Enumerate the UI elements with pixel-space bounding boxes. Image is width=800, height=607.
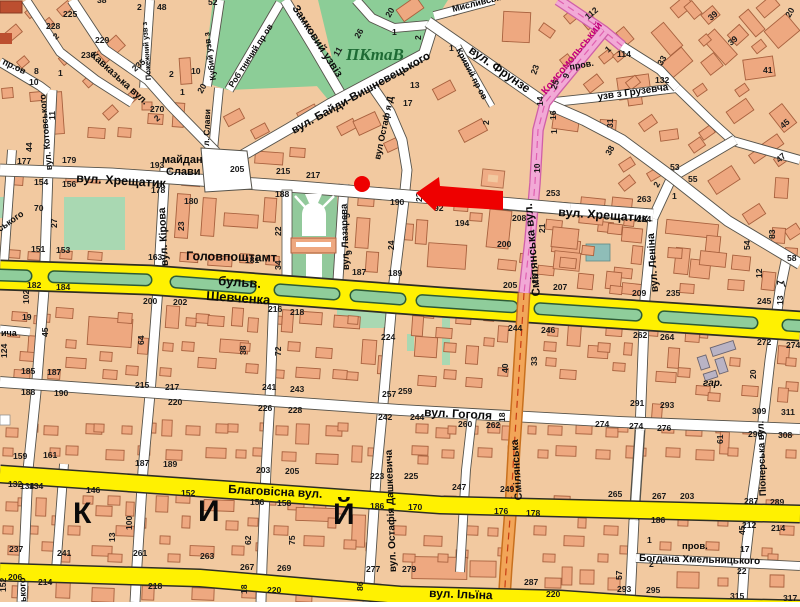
svg-text:86: 86 — [355, 581, 365, 591]
svg-text:1: 1 — [58, 68, 63, 78]
svg-text:1: 1 — [180, 87, 185, 97]
svg-text:62: 62 — [243, 535, 253, 545]
svg-text:70: 70 — [34, 203, 44, 213]
svg-text:132: 132 — [655, 75, 670, 85]
svg-text:ича: ича — [1, 328, 18, 338]
svg-text:242: 242 — [378, 412, 393, 422]
svg-text:38: 38 — [238, 345, 248, 355]
svg-text:287: 287 — [524, 577, 539, 587]
svg-text:176: 176 — [494, 506, 509, 516]
svg-text:187: 187 — [135, 458, 150, 468]
svg-text:184: 184 — [56, 282, 71, 292]
svg-text:188: 188 — [21, 387, 36, 397]
svg-text:151: 151 — [31, 244, 46, 254]
svg-text:190: 190 — [390, 197, 405, 207]
svg-text:152: 152 — [0, 577, 8, 592]
svg-text:205: 205 — [285, 466, 300, 476]
svg-text:203: 203 — [680, 491, 695, 501]
svg-text:К: К — [73, 497, 92, 530]
svg-text:9: 9 — [344, 250, 354, 255]
svg-text:58: 58 — [787, 253, 797, 263]
svg-text:245: 245 — [757, 296, 772, 306]
svg-text:193: 193 — [150, 160, 165, 170]
svg-text:247: 247 — [452, 482, 467, 492]
svg-text:263: 263 — [637, 194, 652, 204]
svg-text:Й: Й — [333, 497, 355, 531]
svg-text:1: 1 — [449, 43, 454, 53]
svg-text:1: 1 — [672, 191, 677, 201]
svg-text:146: 146 — [86, 485, 101, 495]
svg-text:21: 21 — [537, 223, 547, 233]
svg-text:майдан: майдан — [162, 154, 203, 166]
svg-text:230: 230 — [81, 50, 96, 60]
svg-text:241: 241 — [262, 382, 277, 392]
svg-text:261: 261 — [133, 548, 148, 558]
svg-text:2: 2 — [481, 120, 491, 125]
svg-text:291: 291 — [630, 398, 645, 408]
svg-text:2: 2 — [649, 559, 654, 569]
svg-text:246: 246 — [541, 325, 556, 335]
svg-text:13: 13 — [107, 532, 117, 542]
svg-text:260: 260 — [458, 419, 473, 429]
svg-text:27: 27 — [49, 218, 59, 228]
svg-text:182: 182 — [27, 280, 42, 290]
svg-text:45: 45 — [40, 327, 50, 337]
svg-text:22: 22 — [273, 226, 283, 236]
svg-text:180: 180 — [184, 196, 199, 206]
svg-text:267: 267 — [652, 491, 667, 501]
svg-text:10: 10 — [532, 163, 542, 173]
svg-text:295: 295 — [646, 585, 661, 595]
svg-text:1: 1 — [647, 535, 652, 545]
svg-text:244: 244 — [410, 412, 425, 422]
svg-text:277: 277 — [366, 564, 381, 574]
svg-text:33: 33 — [529, 356, 539, 366]
svg-text:185: 185 — [21, 366, 36, 376]
svg-text:276: 276 — [657, 423, 672, 433]
svg-text:274: 274 — [629, 421, 644, 431]
svg-text:244: 244 — [508, 323, 523, 333]
svg-text:17: 17 — [403, 98, 413, 108]
svg-text:14: 14 — [535, 96, 545, 106]
svg-text:287: 287 — [744, 496, 759, 506]
svg-text:8: 8 — [34, 66, 39, 76]
svg-text:11: 11 — [47, 111, 57, 120]
svg-text:224: 224 — [381, 332, 396, 342]
svg-text:215: 215 — [135, 380, 150, 390]
svg-text:38: 38 — [97, 0, 107, 5]
svg-text:202: 202 — [173, 297, 188, 307]
svg-text:23: 23 — [176, 221, 186, 231]
svg-text:309: 309 — [752, 406, 767, 416]
svg-text:57: 57 — [614, 570, 624, 580]
svg-text:10: 10 — [29, 77, 39, 87]
svg-text:75: 75 — [287, 535, 297, 545]
svg-text:186: 186 — [651, 515, 666, 525]
svg-text:188: 188 — [275, 189, 290, 199]
svg-text:217: 217 — [306, 170, 321, 180]
svg-text:218: 218 — [148, 581, 163, 591]
svg-text:10: 10 — [191, 66, 201, 76]
svg-text:31: 31 — [605, 118, 615, 128]
svg-text:2: 2 — [413, 35, 423, 40]
svg-text:153: 153 — [56, 245, 71, 255]
svg-text:64: 64 — [136, 335, 146, 345]
svg-text:290: 290 — [748, 429, 763, 439]
svg-text:200: 200 — [497, 239, 512, 249]
svg-text:223: 223 — [370, 471, 385, 481]
svg-text:вул. Лазарєва: вул. Лазарєва — [339, 203, 352, 270]
svg-text:317: 317 — [783, 593, 798, 602]
svg-text:206: 206 — [8, 572, 23, 582]
svg-text:207: 207 — [553, 282, 568, 292]
svg-text:гар.: гар. — [703, 378, 723, 389]
svg-text:48: 48 — [157, 2, 167, 12]
svg-text:л. Слави: л. Слави — [201, 109, 212, 146]
svg-text:228: 228 — [288, 405, 303, 415]
svg-text:114: 114 — [617, 49, 631, 59]
svg-text:293: 293 — [617, 584, 632, 594]
svg-text:187: 187 — [352, 267, 367, 277]
svg-text:178: 178 — [526, 508, 541, 518]
svg-text:23: 23 — [530, 274, 540, 284]
svg-text:пров.: пров. — [682, 541, 708, 552]
svg-text:34: 34 — [273, 260, 283, 270]
svg-text:264: 264 — [660, 332, 675, 342]
svg-text:224: 224 — [637, 214, 652, 224]
svg-text:205: 205 — [503, 280, 518, 290]
svg-text:Слави: Слави — [166, 166, 201, 178]
svg-text:24: 24 — [386, 240, 396, 250]
svg-text:44: 44 — [24, 142, 34, 152]
svg-text:274: 274 — [786, 340, 800, 350]
svg-text:225: 225 — [63, 9, 78, 19]
svg-text:83: 83 — [767, 229, 777, 239]
svg-text:124: 124 — [0, 343, 9, 358]
svg-text:218: 218 — [290, 307, 305, 317]
svg-text:40: 40 — [500, 363, 510, 373]
svg-text:Головпоштамт: Головпоштамт — [186, 249, 277, 265]
svg-text:18: 18 — [497, 412, 507, 422]
svg-text:308: 308 — [778, 430, 793, 440]
svg-text:72: 72 — [273, 346, 283, 356]
svg-text:269: 269 — [277, 563, 292, 573]
svg-text:102: 102 — [21, 289, 31, 304]
svg-text:235: 235 — [666, 288, 681, 298]
svg-text:16: 16 — [548, 110, 558, 120]
svg-text:229: 229 — [95, 35, 110, 45]
svg-text:17: 17 — [740, 544, 750, 554]
svg-text:156: 156 — [62, 179, 77, 189]
svg-text:12: 12 — [754, 268, 764, 278]
svg-text:13: 13 — [410, 80, 420, 90]
svg-text:2: 2 — [137, 2, 142, 12]
svg-text:208: 208 — [512, 213, 527, 223]
svg-text:200: 200 — [143, 296, 158, 306]
svg-text:189: 189 — [163, 459, 178, 469]
svg-text:226: 226 — [258, 403, 273, 413]
svg-text:214: 214 — [771, 523, 786, 533]
svg-text:132: 132 — [8, 479, 23, 489]
svg-text:293: 293 — [660, 400, 675, 410]
svg-text:194: 194 — [455, 218, 470, 228]
svg-text:156: 156 — [250, 497, 265, 507]
svg-text:100: 100 — [124, 515, 134, 530]
svg-text:158: 158 — [277, 498, 292, 508]
svg-text:220: 220 — [267, 585, 282, 595]
svg-text:186: 186 — [370, 501, 385, 511]
svg-text:55: 55 — [688, 174, 698, 184]
svg-text:5: 5 — [342, 213, 352, 218]
svg-text:203: 203 — [256, 465, 271, 475]
svg-text:205: 205 — [230, 164, 245, 174]
svg-text:187: 187 — [47, 367, 62, 377]
svg-text:263: 263 — [200, 551, 215, 561]
svg-text:228: 228 — [46, 21, 61, 31]
svg-text:272: 272 — [757, 337, 772, 347]
svg-text:20: 20 — [748, 369, 758, 379]
svg-text:189: 189 — [388, 268, 403, 278]
svg-text:53: 53 — [670, 162, 680, 172]
svg-text:161: 161 — [43, 450, 58, 460]
svg-text:54: 54 — [742, 240, 752, 250]
svg-text:267: 267 — [240, 562, 255, 572]
svg-text:216: 216 — [268, 304, 283, 314]
svg-text:265: 265 — [608, 489, 623, 499]
svg-text:19: 19 — [22, 312, 32, 322]
svg-text:ПКтаВ: ПКтаВ — [345, 45, 404, 64]
svg-text:253: 253 — [546, 188, 561, 198]
svg-text:1: 1 — [392, 27, 397, 37]
svg-text:170: 170 — [408, 502, 423, 512]
svg-text:52: 52 — [208, 0, 218, 7]
svg-text:159: 159 — [13, 451, 28, 461]
svg-text:179: 179 — [62, 155, 77, 165]
svg-text:41: 41 — [763, 65, 773, 75]
svg-text:237: 237 — [9, 544, 24, 554]
svg-text:178: 178 — [151, 185, 166, 195]
svg-text:311: 311 — [781, 407, 795, 417]
svg-text:289: 289 — [770, 497, 785, 507]
svg-text:249: 249 — [500, 484, 515, 494]
svg-text:61: 61 — [715, 434, 725, 444]
svg-text:И: И — [198, 495, 220, 528]
svg-text:45: 45 — [737, 525, 747, 535]
svg-text:134: 134 — [29, 481, 44, 491]
svg-text:2: 2 — [169, 69, 174, 79]
svg-text:209: 209 — [632, 288, 647, 298]
svg-text:154: 154 — [34, 177, 49, 187]
svg-text:190: 190 — [54, 388, 69, 398]
svg-text:259: 259 — [398, 386, 413, 396]
svg-text:262: 262 — [633, 330, 648, 340]
svg-text:243: 243 — [290, 384, 305, 394]
svg-text:177: 177 — [17, 156, 32, 166]
svg-text:13: 13 — [775, 295, 785, 305]
svg-text:181: 181 — [245, 255, 260, 265]
svg-text:214: 214 — [38, 577, 53, 587]
svg-text:257: 257 — [382, 389, 397, 399]
svg-text:18: 18 — [239, 584, 249, 594]
svg-text:225: 225 — [404, 471, 419, 481]
svg-text:220: 220 — [168, 397, 183, 407]
svg-text:22: 22 — [737, 566, 747, 576]
svg-text:274: 274 — [595, 419, 610, 429]
svg-text:270: 270 — [150, 104, 165, 114]
svg-text:1: 1 — [549, 129, 559, 134]
svg-text:220: 220 — [546, 589, 561, 599]
svg-text:215: 215 — [276, 166, 291, 176]
svg-text:217: 217 — [165, 382, 180, 392]
svg-text:279: 279 — [402, 564, 417, 574]
svg-text:152: 152 — [181, 488, 196, 498]
svg-text:163: 163 — [148, 252, 163, 262]
svg-text:241: 241 — [57, 548, 72, 558]
svg-text:315: 315 — [730, 591, 745, 601]
svg-text:вул. Ільїна: вул. Ільїна — [429, 586, 493, 602]
